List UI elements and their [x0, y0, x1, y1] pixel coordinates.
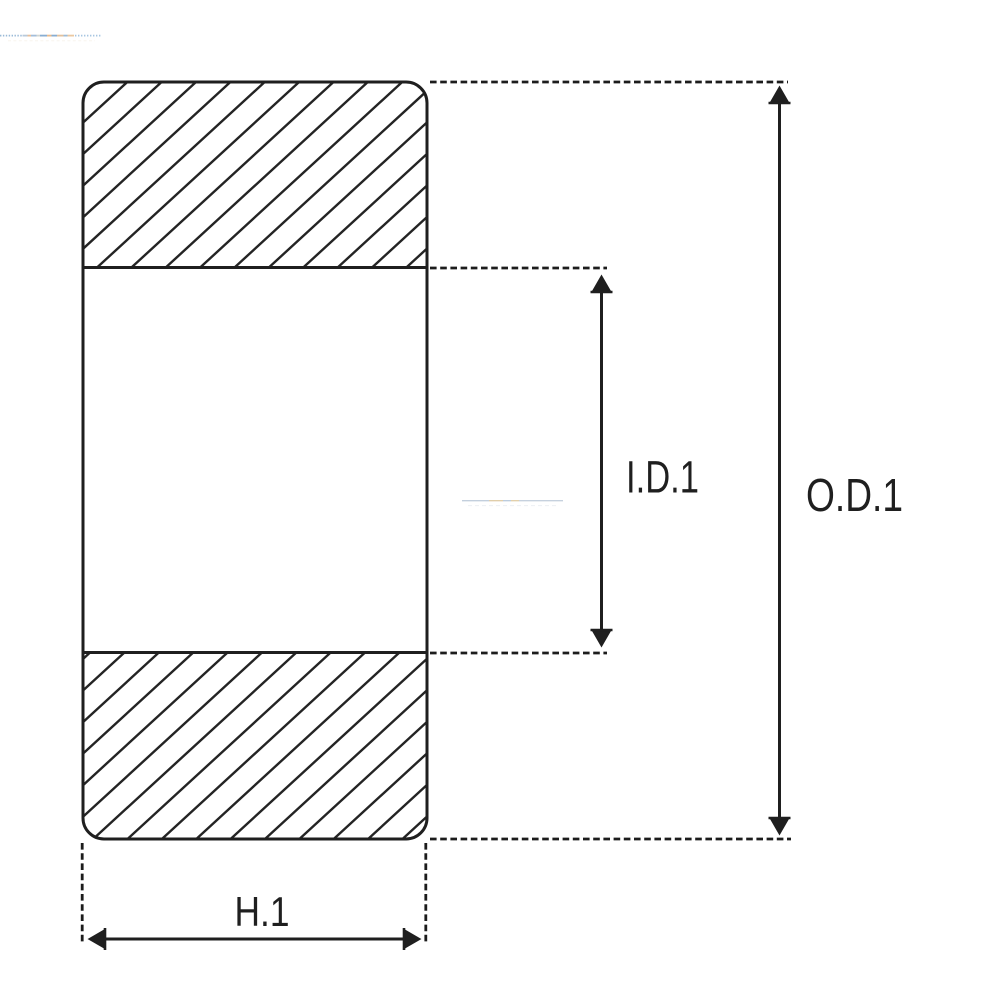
- svg-text:O.D.1: O.D.1: [806, 469, 903, 521]
- svg-text:H.1: H.1: [235, 888, 290, 935]
- svg-text:I.D.1: I.D.1: [626, 452, 699, 503]
